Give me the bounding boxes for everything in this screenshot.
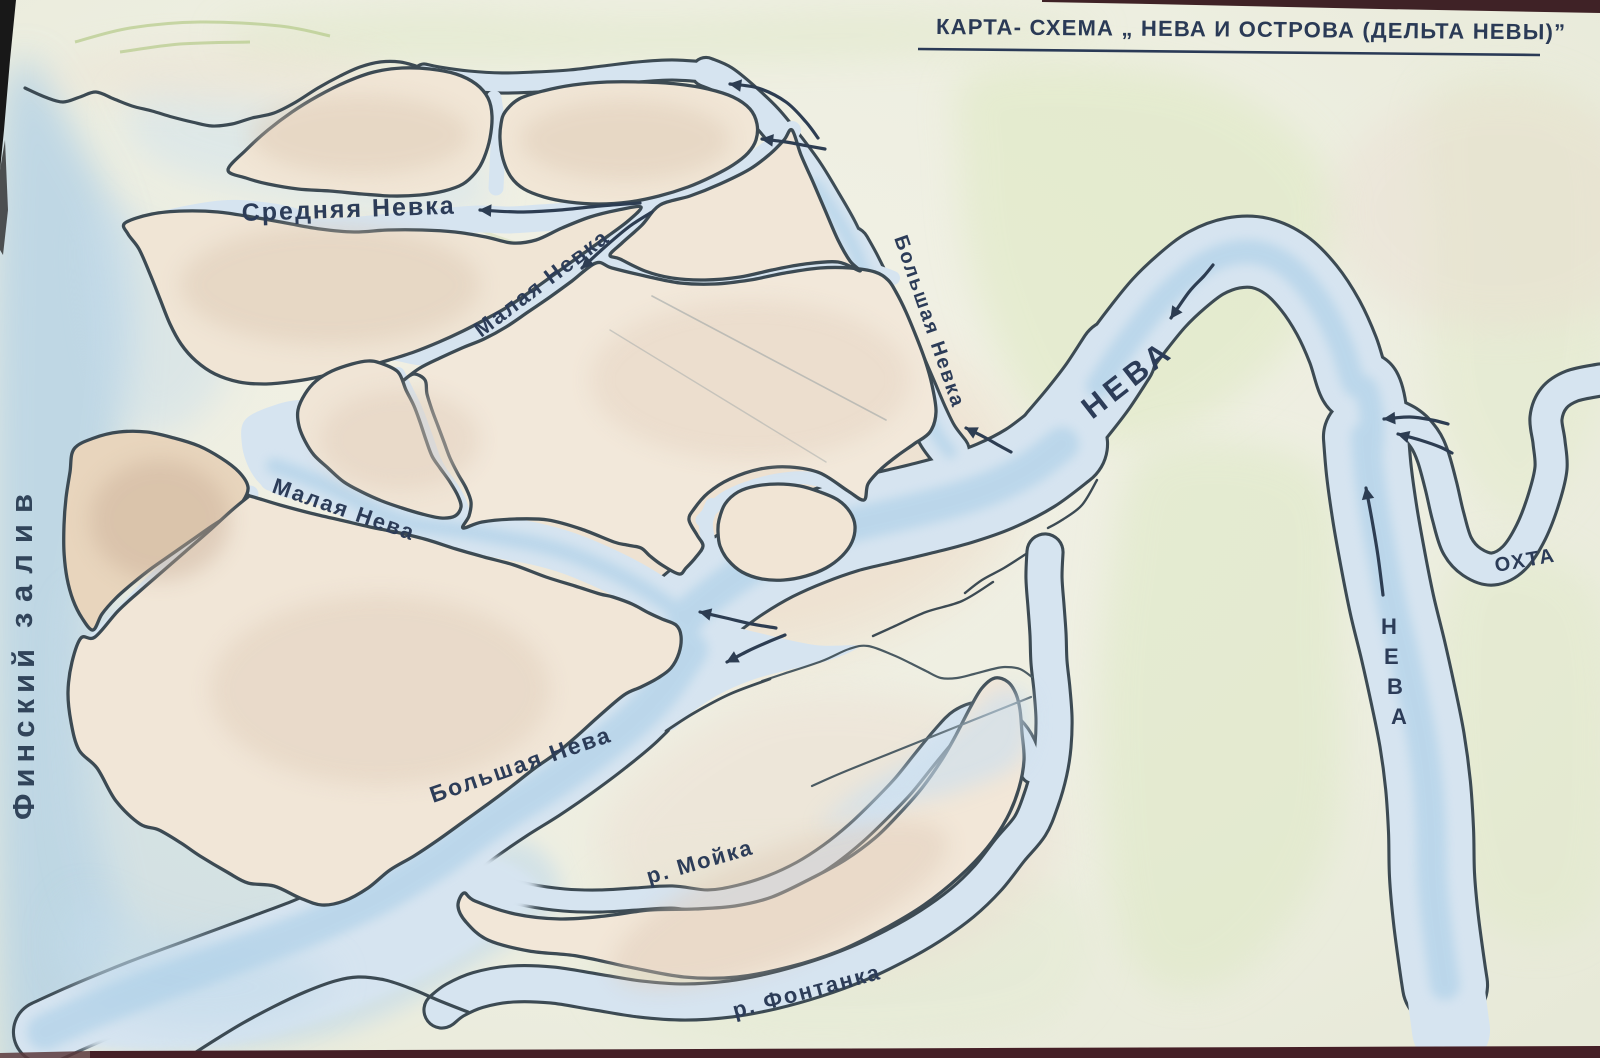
svg-text:Финский: Финский	[6, 643, 41, 820]
svg-text:Н: Н	[1381, 614, 1397, 639]
svg-text:В: В	[1387, 674, 1403, 699]
svg-text:А: А	[1391, 704, 1407, 729]
svg-text:залив: залив	[4, 483, 39, 628]
svg-text:Е: Е	[1384, 644, 1399, 669]
